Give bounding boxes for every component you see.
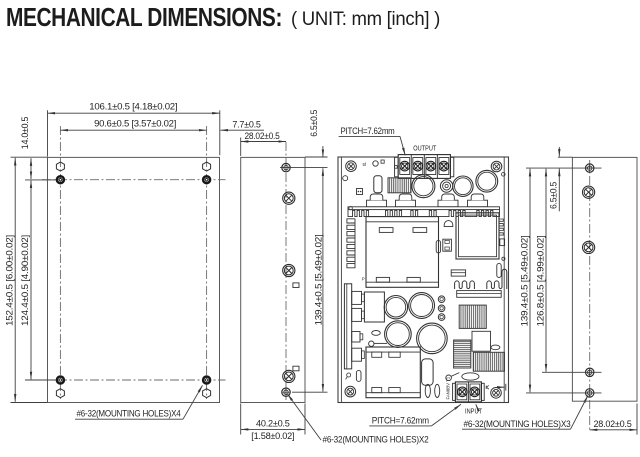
- svg-text:139.4±0.5 [5.49±0.02]: 139.4±0.5 [5.49±0.02]: [313, 235, 323, 326]
- svg-text:139.4±0.5 [5.49±0.02]: 139.4±0.5 [5.49±0.02]: [520, 236, 530, 327]
- svg-text:28.02±0.5: 28.02±0.5: [594, 419, 632, 429]
- svg-text:INPUT: INPUT: [465, 407, 482, 416]
- svg-text:28.02±0.5: 28.02±0.5: [245, 131, 280, 141]
- svg-text:P: P: [362, 277, 365, 282]
- svg-text:14.0±0.5: 14.0±0.5: [20, 117, 30, 150]
- svg-text:126.8±0.5 [4.99±0.02]: 126.8±0.5 [4.99±0.02]: [536, 236, 546, 327]
- svg-text:40.2±0.5: 40.2±0.5: [256, 418, 290, 428]
- svg-text:106.1±0.5 [4.18±0.02]: 106.1±0.5 [4.18±0.02]: [89, 102, 177, 112]
- svg-text:90.6±0.5 [3.57±0.02]: 90.6±0.5 [3.57±0.02]: [94, 118, 176, 128]
- svg-text:7.7±0.5: 7.7±0.5: [232, 120, 260, 130]
- svg-text:124.4±0.5 [4.90±0.02]: 124.4±0.5 [4.90±0.02]: [20, 235, 30, 326]
- svg-text:#6-32(MOUNTING HOLES)X4: #6-32(MOUNTING HOLES)X4: [77, 409, 181, 419]
- svg-text:PITCH=7.62mm: PITCH=7.62mm: [341, 126, 395, 136]
- svg-text:6.5±0.5: 6.5±0.5: [548, 182, 558, 209]
- svg-text:6.5±0.5: 6.5±0.5: [309, 110, 319, 137]
- svg-text:MECHANICAL DIMENSIONS:: MECHANICAL DIMENSIONS:: [6, 2, 282, 32]
- svg-text:#6-32(MOUNTING HOLES)X2: #6-32(MOUNTING HOLES)X2: [323, 434, 429, 444]
- svg-text:#6-32(MOUNTING HOLES)X3: #6-32(MOUNTING HOLES)X3: [464, 419, 571, 429]
- svg-text:PITCH=7.62mm: PITCH=7.62mm: [372, 416, 429, 426]
- svg-text:OUTPUT: OUTPUT: [413, 144, 436, 153]
- svg-text:[1.58±0.02]: [1.58±0.02]: [251, 431, 294, 441]
- svg-text:152.4±0.5 [6.00±0.02]: 152.4±0.5 [6.00±0.02]: [5, 235, 15, 326]
- svg-text:( UNIT: mm [inch] ): ( UNIT: mm [inch] ): [291, 9, 440, 30]
- svg-text:FAN8BV T1: FAN8BV T1: [446, 376, 451, 399]
